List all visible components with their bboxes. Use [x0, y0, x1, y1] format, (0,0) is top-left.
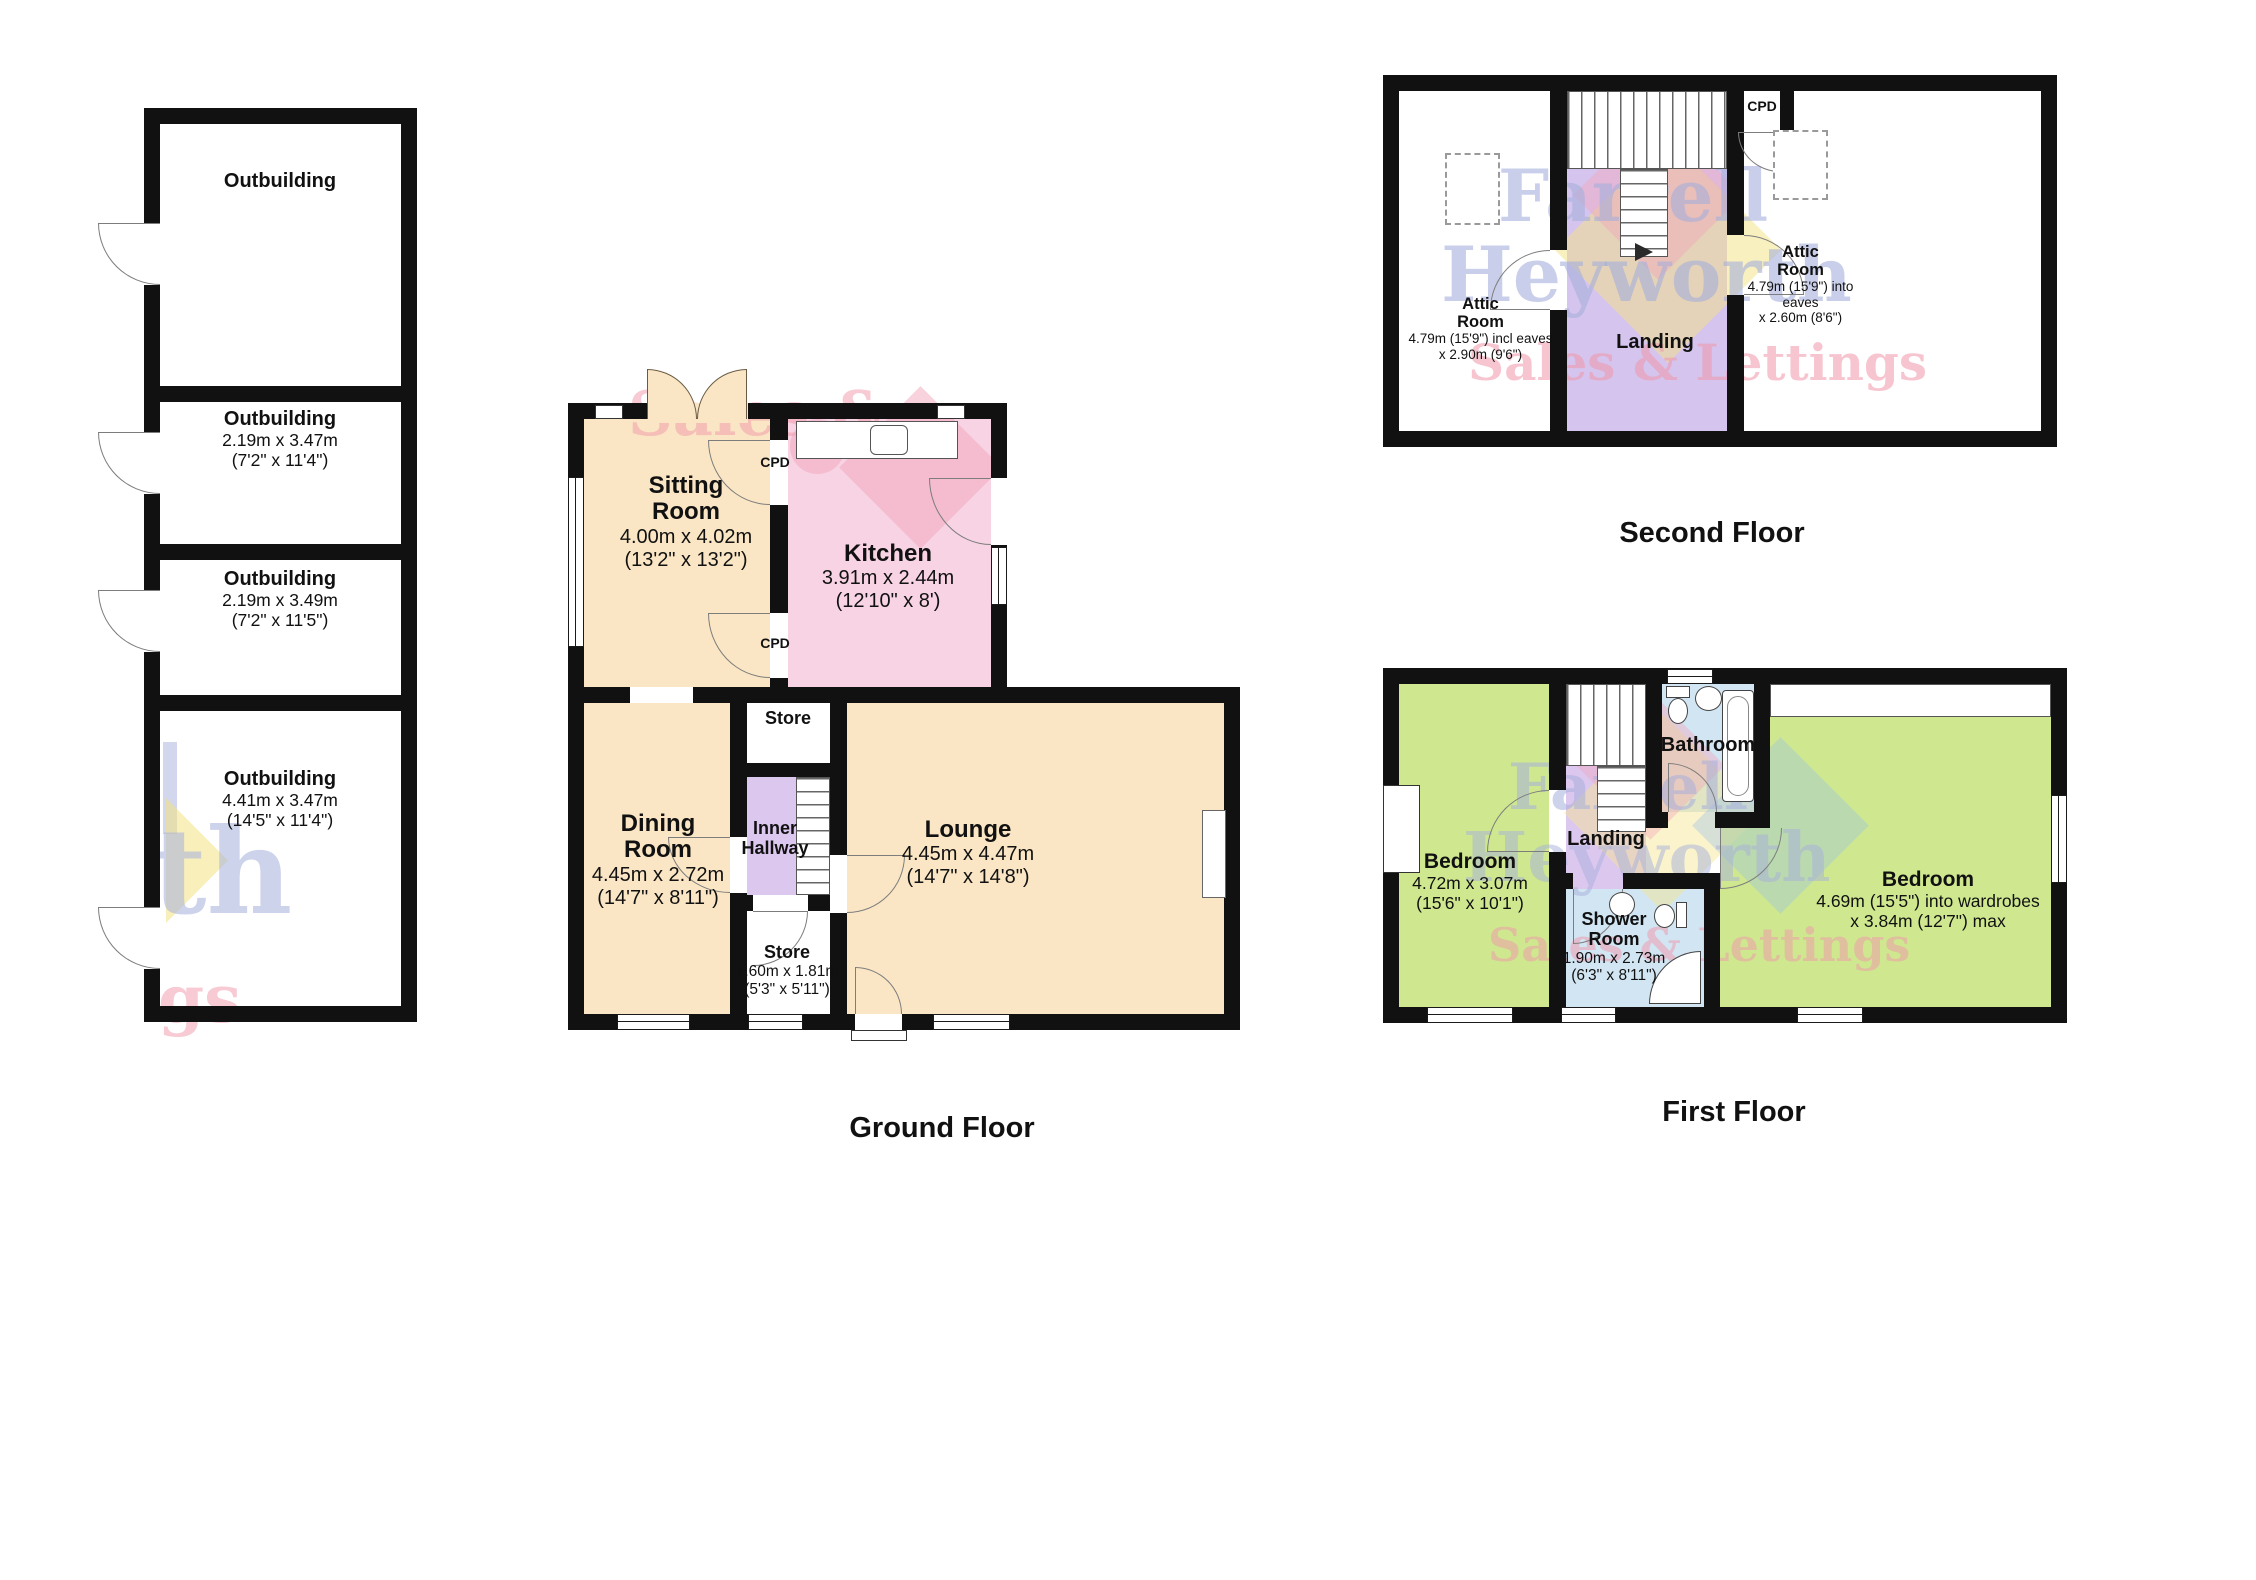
door-arc: [98, 907, 160, 969]
shower-window: [1561, 1007, 1616, 1023]
room-name: Outbuilding: [180, 768, 380, 790]
wall: [144, 108, 417, 124]
wall: [770, 505, 788, 613]
wall: [747, 895, 753, 911]
wardrobe-strip: [1770, 684, 2051, 717]
room-dimensions: 1.90m x 2.73m (6'3" x 8'11"): [1555, 950, 1673, 986]
room-name: Bedroom: [1803, 868, 2053, 891]
basin: [1695, 686, 1722, 711]
room-label-attic-right: Attic Room 4.79m (15'9") into eaves x 2.…: [1728, 243, 1873, 326]
wall: [144, 969, 160, 1006]
toilet-tank: [1666, 686, 1690, 698]
room-dimensions: 1.60m x 1.81m (5'3" x 5'11"): [728, 963, 846, 999]
bedroom-right-side-window: [2051, 795, 2067, 883]
wall: [144, 108, 160, 223]
room-dimensions: 4.45m x 4.47m (14'7" x 14'8"): [888, 843, 1048, 889]
room-name: Bathroom: [1653, 734, 1763, 756]
wall: [568, 1014, 855, 1030]
wall: [747, 763, 830, 777]
second-floor-plan: Farrell Heyworth Sales & Lettings Attic …: [1383, 75, 2057, 447]
wall: [748, 403, 1007, 419]
stairs-winder: [1566, 684, 1646, 766]
stairs-winder: [1567, 91, 1727, 169]
wall: [1704, 889, 1720, 1007]
door-arc: [98, 223, 160, 285]
room-name: CPD: [745, 636, 805, 651]
outbuildings-plan: th gs Outbuilding Outbuilding 2.19m x 3.…: [144, 108, 417, 1022]
room-label-lounge: Lounge 4.45m x 4.47m (14'7" x 14'8"): [888, 817, 1048, 889]
room-name: Landing: [1541, 828, 1671, 850]
sitting-room-window: [568, 477, 584, 647]
title-ground-floor: Ground Floor: [767, 1112, 1117, 1145]
door-arc: [98, 590, 160, 652]
room-label-outbuilding-2: Outbuilding 2.19m x 3.47m (7'2" x 11'4"): [180, 408, 380, 470]
wall: [1224, 687, 1240, 1030]
room-name: Attic Room: [1403, 295, 1558, 331]
wall: [2041, 75, 2057, 447]
room-name: Outbuilding: [180, 568, 380, 590]
dining-room-window: [617, 1014, 690, 1030]
room-label-inner-hallway: Inner Hallway: [720, 819, 830, 859]
room-name: CPD: [745, 455, 805, 470]
room-name: Dining Room: [578, 811, 738, 864]
room-label-store-top: Store: [748, 709, 828, 729]
room-name: CPD: [1739, 99, 1785, 114]
door-arc: [98, 432, 160, 494]
wall: [144, 652, 160, 907]
bedroom-left-window: [1427, 1007, 1513, 1023]
room-name: Bedroom: [1390, 850, 1550, 873]
wall: [1549, 873, 1573, 889]
room-name: Outbuilding: [180, 408, 380, 430]
wall: [1754, 684, 1770, 828]
wall: [568, 687, 630, 703]
lounge-recess: [1202, 810, 1226, 898]
room-label-outbuilding-3: Outbuilding 2.19m x 3.49m (7'2" x 11'5"): [180, 568, 380, 630]
room-label-kitchen: Kitchen 3.91m x 2.44m (12'10" x 8'): [808, 541, 968, 613]
room-name: Attic Room: [1728, 243, 1873, 279]
bathroom-window: [1667, 669, 1713, 684]
room-name: Store: [728, 943, 846, 963]
wall: [1550, 91, 1567, 250]
first-floor-plan: Farrell Heyworth Sales & Lettings: [1383, 668, 2067, 1023]
toilet-bowl: [1668, 698, 1688, 724]
room-label-bathroom: Bathroom: [1653, 734, 1763, 756]
title-first-floor: First Floor: [1559, 1096, 1909, 1129]
room-label-bedroom-left: Bedroom 4.72m x 3.07m (15'6" x 10'1"): [1390, 850, 1550, 913]
wall: [1383, 75, 2057, 91]
room-label-sitting-room: Sitting Room 4.00m x 4.02m (13'2" x 13'2…: [606, 473, 766, 572]
room-name: Inner Hallway: [720, 819, 830, 859]
room-dimensions: 4.69m (15'5") into wardrobes x 3.84m (12…: [1803, 891, 2053, 931]
wall: [1715, 812, 1770, 828]
wall: [808, 895, 830, 911]
kitchen-sink: [870, 425, 908, 455]
wall: [770, 678, 788, 687]
ground-floor-plan: Sales &: [568, 355, 1240, 1030]
wall: [693, 687, 1240, 703]
wall: [144, 285, 160, 432]
wall: [1646, 812, 1668, 828]
roof-window-outline: [1445, 153, 1500, 225]
room-label-bedroom-right: Bedroom 4.69m (15'5") into wardrobes x 3…: [1803, 868, 2053, 931]
wall: [1549, 684, 1566, 790]
wall: [1383, 668, 2067, 684]
room-dimensions: 3.91m x 2.44m (12'10" x 8'): [808, 567, 968, 613]
wall: [160, 386, 401, 402]
room-dimensions: 2.19m x 3.49m (7'2" x 11'5"): [180, 590, 380, 630]
door-hinge-block: [937, 405, 965, 419]
room-label-shower-room: Shower Room 1.90m x 2.73m (6'3" x 8'11"): [1555, 910, 1673, 985]
floorplan-canvas: th gs Outbuilding Outbuilding 2.19m x 3.…: [0, 0, 2256, 1580]
room-dimensions: 4.79m (15'9") incl eaves x 2.90m (9'6"): [1403, 331, 1558, 362]
title-second-floor: Second Floor: [1537, 517, 1887, 550]
watermark-fragment-gs: gs: [158, 960, 241, 1038]
room-label-attic-left: Attic Room 4.79m (15'9") incl eaves x 2.…: [1403, 295, 1558, 362]
wall: [144, 494, 160, 590]
door-hinge-block: [595, 405, 623, 419]
room-label-cpd-bottom: CPD: [745, 636, 805, 651]
room-dimensions: 4.00m x 4.02m (13'2" x 13'2"): [606, 526, 766, 572]
room-dimensions: 4.79m (15'9") into eaves x 2.60m (8'6"): [1728, 279, 1873, 326]
wall: [770, 419, 788, 440]
room-label-outbuilding-1: Outbuilding: [180, 170, 380, 192]
room-name: Lounge: [888, 817, 1048, 843]
room-name: Shower Room: [1555, 910, 1673, 950]
room-name: Sitting Room: [606, 473, 766, 526]
wall: [1383, 75, 1399, 447]
room-name: Outbuilding: [180, 170, 380, 192]
room-name: Kitchen: [808, 541, 968, 567]
room-label-outbuilding-4: Outbuilding 4.41m x 3.47m (14'5" x 11'4"…: [180, 768, 380, 830]
wall: [1623, 873, 1720, 889]
room-label-cpd-top: CPD: [745, 455, 805, 470]
wall: [1383, 431, 2057, 447]
wall: [160, 544, 401, 560]
stairs-run: [1620, 169, 1668, 257]
room-dimensions: 4.45m x 2.72m (14'7" x 8'11"): [578, 864, 738, 910]
room-label-landing-first: Landing: [1541, 828, 1671, 850]
stairs-run: [1597, 766, 1646, 832]
room-label-cpd-second: CPD: [1739, 99, 1785, 114]
room-name: Store: [748, 709, 828, 729]
room-label-dining-room: Dining Room 4.45m x 2.72m (14'7" x 8'11"…: [578, 811, 738, 910]
room-dimensions: 4.72m x 3.07m (15'6" x 10'1"): [1390, 873, 1550, 913]
room-dimensions: 4.41m x 3.47m (14'5" x 11'4"): [180, 790, 380, 830]
store-window: [748, 1014, 803, 1030]
room-label-store-bottom: Store 1.60m x 1.81m (5'3" x 5'11"): [728, 943, 846, 998]
room-dimensions: 2.19m x 3.47m (7'2" x 11'4"): [180, 430, 380, 470]
kitchen-side-window: [991, 547, 1007, 605]
bedroom-right-window: [1797, 1007, 1863, 1023]
roof-window-outline: [1773, 130, 1828, 200]
wall: [401, 108, 417, 1022]
wall: [160, 695, 401, 711]
room-name: Landing: [1600, 331, 1710, 353]
wall: [830, 703, 847, 855]
wall: [991, 403, 1007, 478]
front-door-step: [851, 1030, 907, 1041]
room-label-landing-second: Landing: [1600, 331, 1710, 353]
toilet-tank: [1676, 902, 1687, 928]
wall: [144, 1006, 417, 1022]
lounge-window: [933, 1014, 1010, 1030]
